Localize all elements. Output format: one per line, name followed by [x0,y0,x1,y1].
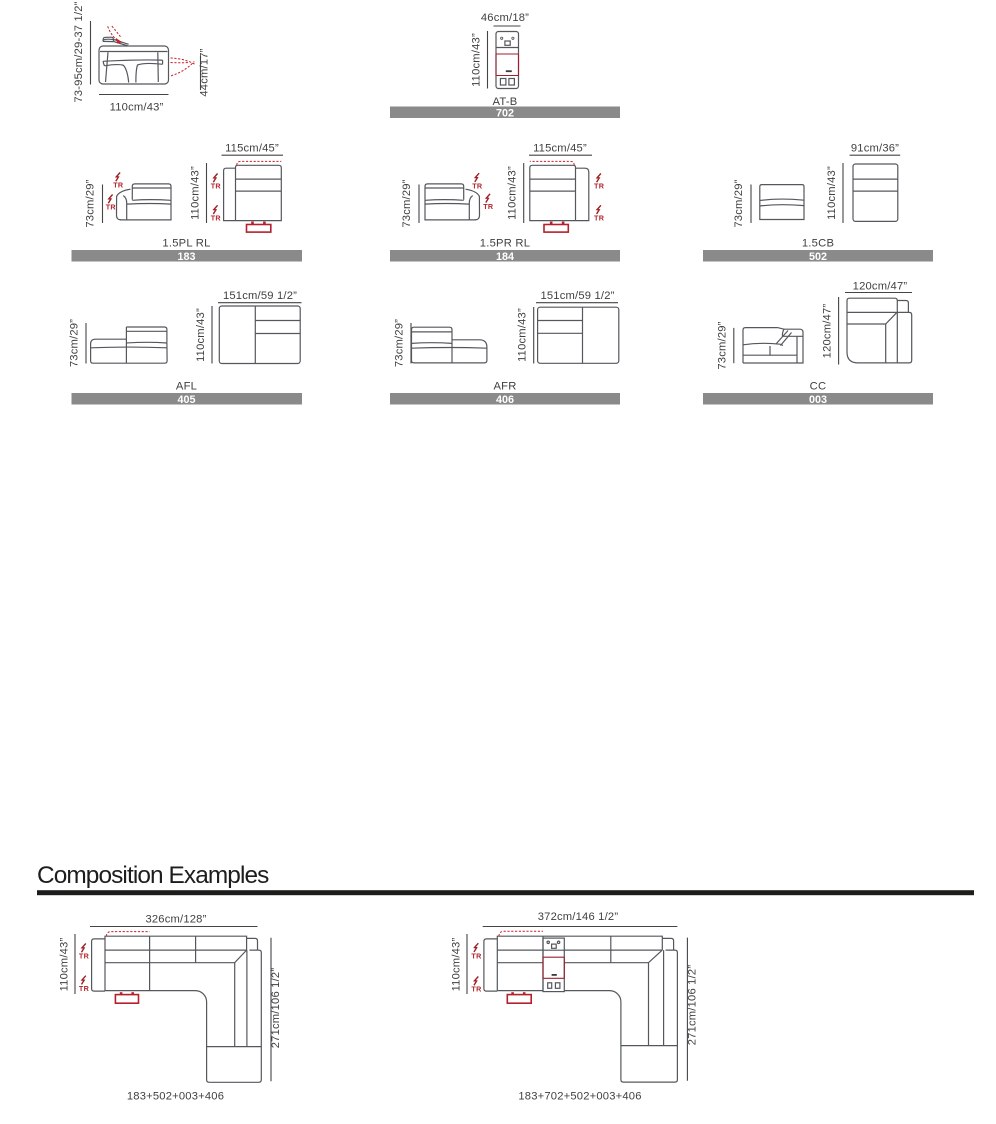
svg-text:151cm/59 1/2”: 151cm/59 1/2” [223,290,297,302]
svg-text:73cm/29”: 73cm/29” [733,179,745,227]
svg-text:1.5PR RL: 1.5PR RL [480,238,531,250]
svg-text:184: 184 [496,251,514,263]
svg-text:183+702+502+003+406: 183+702+502+003+406 [518,1091,641,1103]
svg-text:110cm/43”: 110cm/43” [190,166,202,220]
svg-text:AFL: AFL [176,381,197,393]
svg-text:120cm/47”: 120cm/47” [822,304,834,359]
svg-text:406: 406 [496,394,514,406]
svg-text:73-95cm/29-37 1/2”: 73-95cm/29-37 1/2” [73,1,85,102]
svg-text:110cm/43”: 110cm/43” [195,308,207,362]
svg-text:115cm/45”: 115cm/45” [225,143,279,155]
svg-text:110cm/43”: 110cm/43” [517,308,529,362]
svg-text:326cm/128”: 326cm/128” [145,914,206,926]
svg-text:110cm/43”: 110cm/43” [507,166,519,220]
svg-text:003: 003 [809,394,827,406]
svg-text:AT-B: AT-B [492,96,517,108]
svg-text:115cm/45”: 115cm/45” [533,143,587,155]
svg-text:73cm/29”: 73cm/29” [394,319,406,367]
svg-text:AFR: AFR [493,381,516,393]
svg-text:151cm/59 1/2”: 151cm/59 1/2” [540,290,614,302]
svg-text:110cm/43”: 110cm/43” [471,33,483,87]
svg-text:73cm/29”: 73cm/29” [69,319,81,367]
svg-text:73cm/29”: 73cm/29” [85,179,97,227]
svg-text:110cm/43”: 110cm/43” [826,166,838,220]
svg-text:183+502+003+406: 183+502+003+406 [127,1091,224,1103]
svg-text:CC: CC [810,381,827,393]
svg-text:183: 183 [177,251,195,263]
svg-text:44cm/17”: 44cm/17” [199,48,211,96]
svg-text:702: 702 [496,107,514,119]
svg-text:271cm/106 1/2”: 271cm/106 1/2” [687,965,699,1046]
svg-text:73cm/29”: 73cm/29” [717,321,729,369]
svg-text:120cm/47”: 120cm/47” [853,281,908,293]
svg-text:1.5PL RL: 1.5PL RL [162,238,210,250]
svg-text:1.5CB: 1.5CB [802,238,834,250]
svg-text:372cm/146 1/2”: 372cm/146 1/2” [538,911,619,923]
svg-text:502: 502 [809,251,827,263]
svg-text:Composition Examples: Composition Examples [37,862,269,889]
svg-text:110cm/43”: 110cm/43” [451,938,463,992]
svg-text:110cm/43”: 110cm/43” [59,938,71,992]
svg-text:73cm/29”: 73cm/29” [401,179,413,227]
svg-text:91cm/36”: 91cm/36” [851,143,899,155]
svg-text:271cm/106 1/2”: 271cm/106 1/2” [270,968,282,1049]
svg-text:405: 405 [177,394,195,406]
svg-text:46cm/18”: 46cm/18” [481,12,529,24]
svg-text:110cm/43”: 110cm/43” [110,102,164,114]
